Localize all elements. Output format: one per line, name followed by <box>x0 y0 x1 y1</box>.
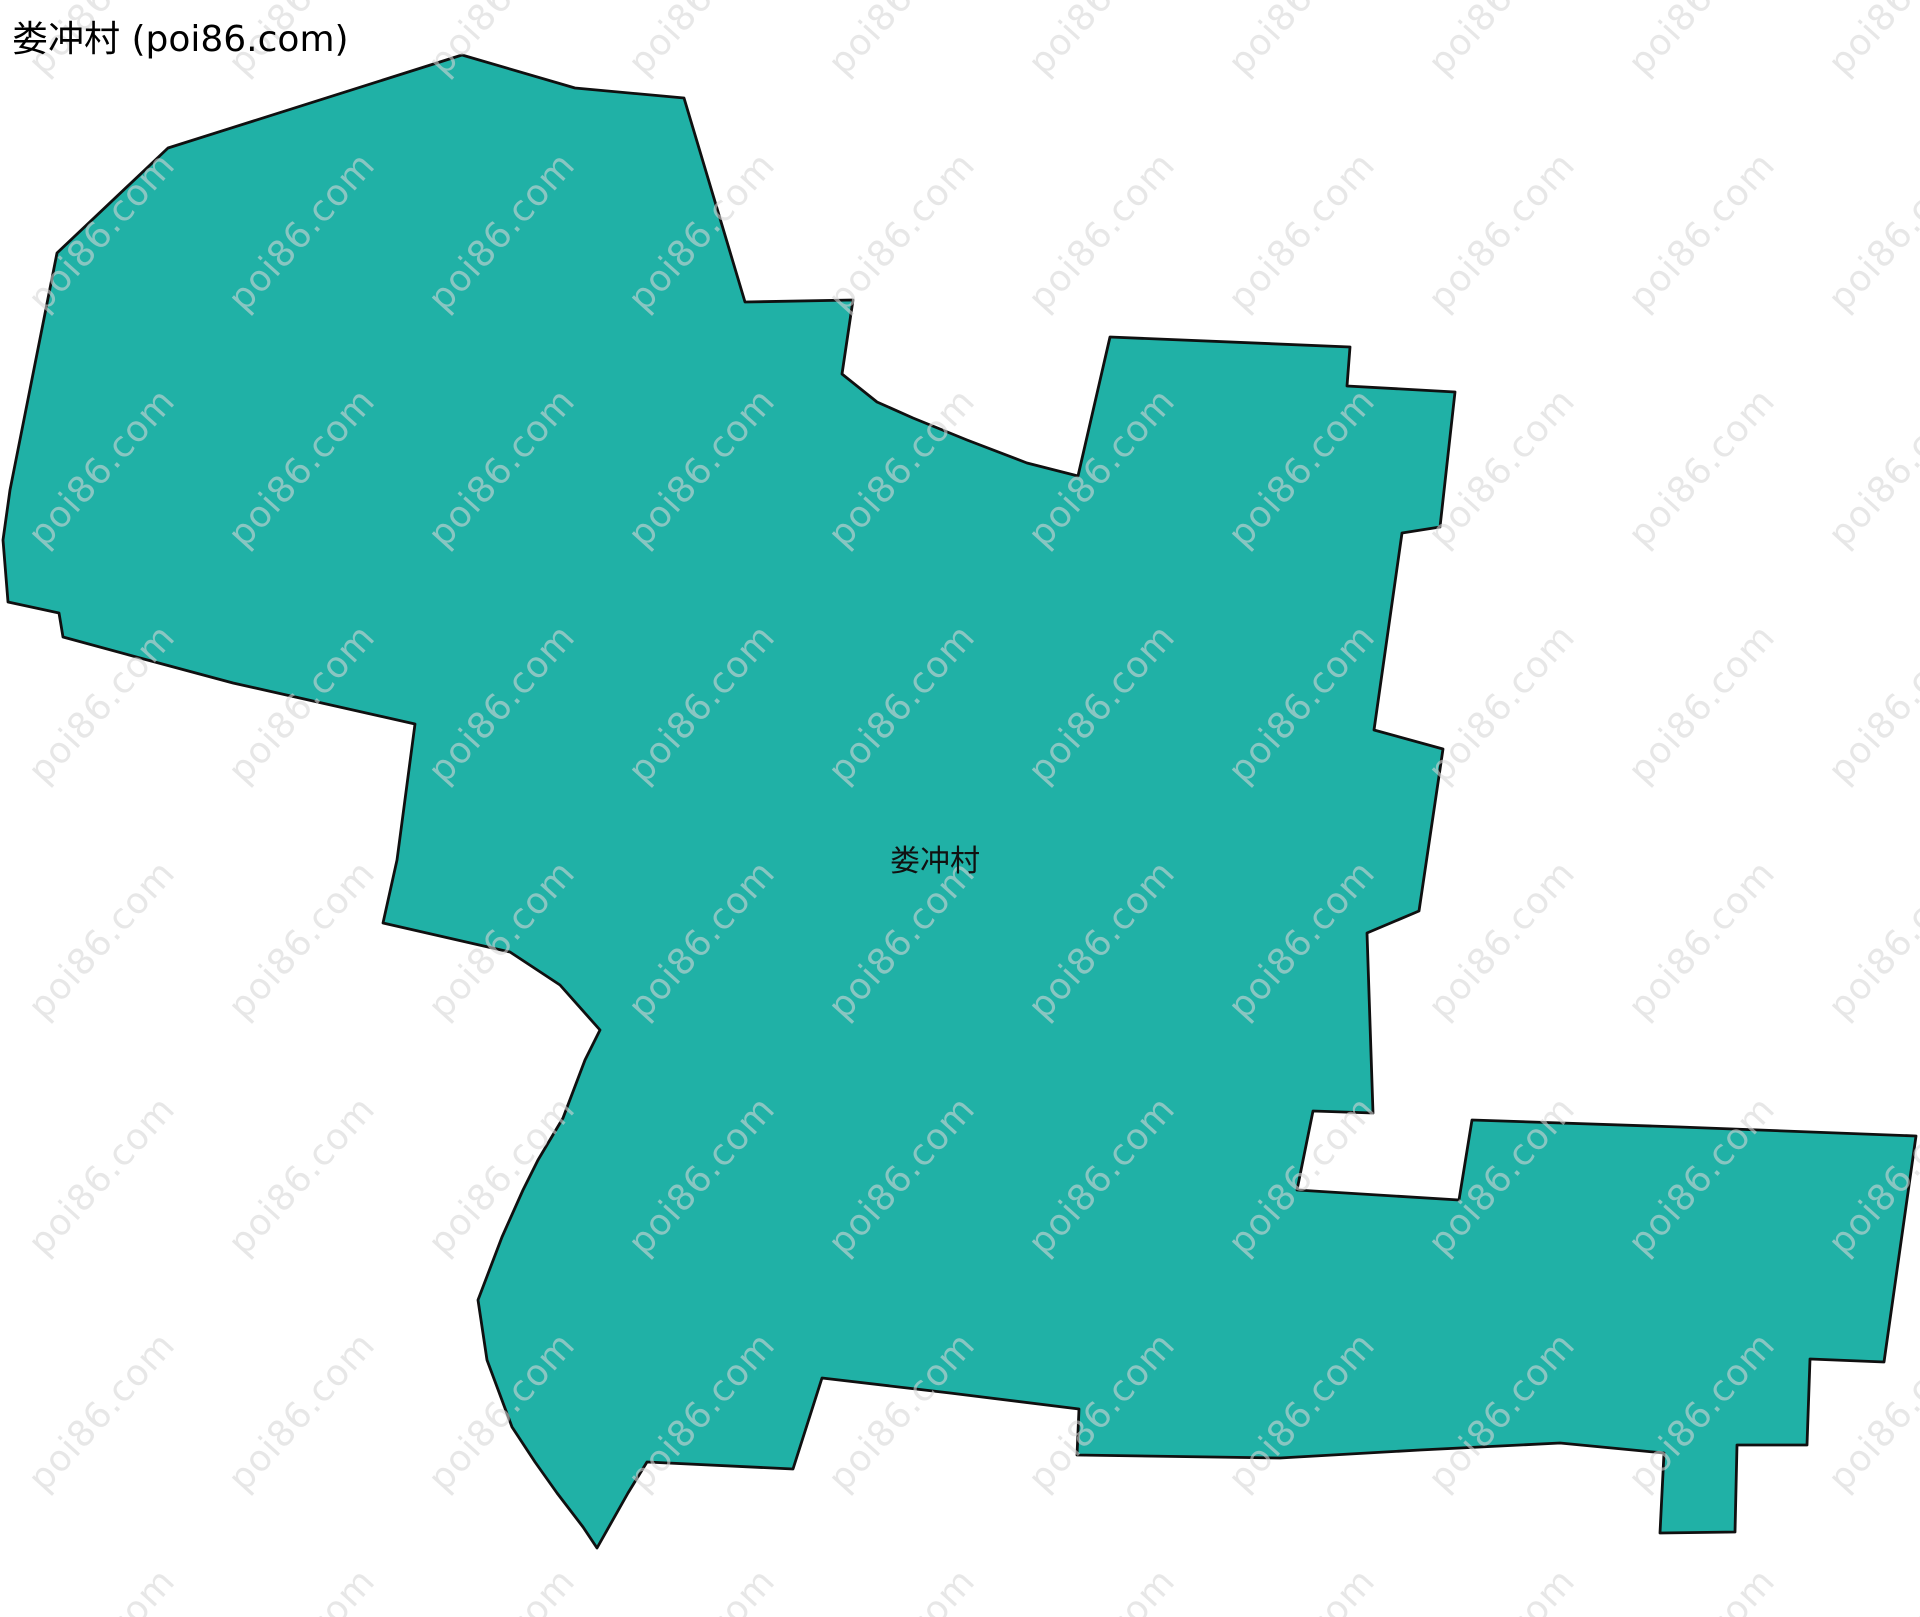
region-label: 娄冲村 <box>890 836 980 880</box>
map-canvas: poi86.compoi86.compoi86.compoi86.compoi8… <box>0 0 1920 1617</box>
page-title: 娄冲村 (poi86.com) <box>12 10 349 62</box>
region-map <box>0 0 1920 1617</box>
region-boundary <box>3 55 1916 1548</box>
